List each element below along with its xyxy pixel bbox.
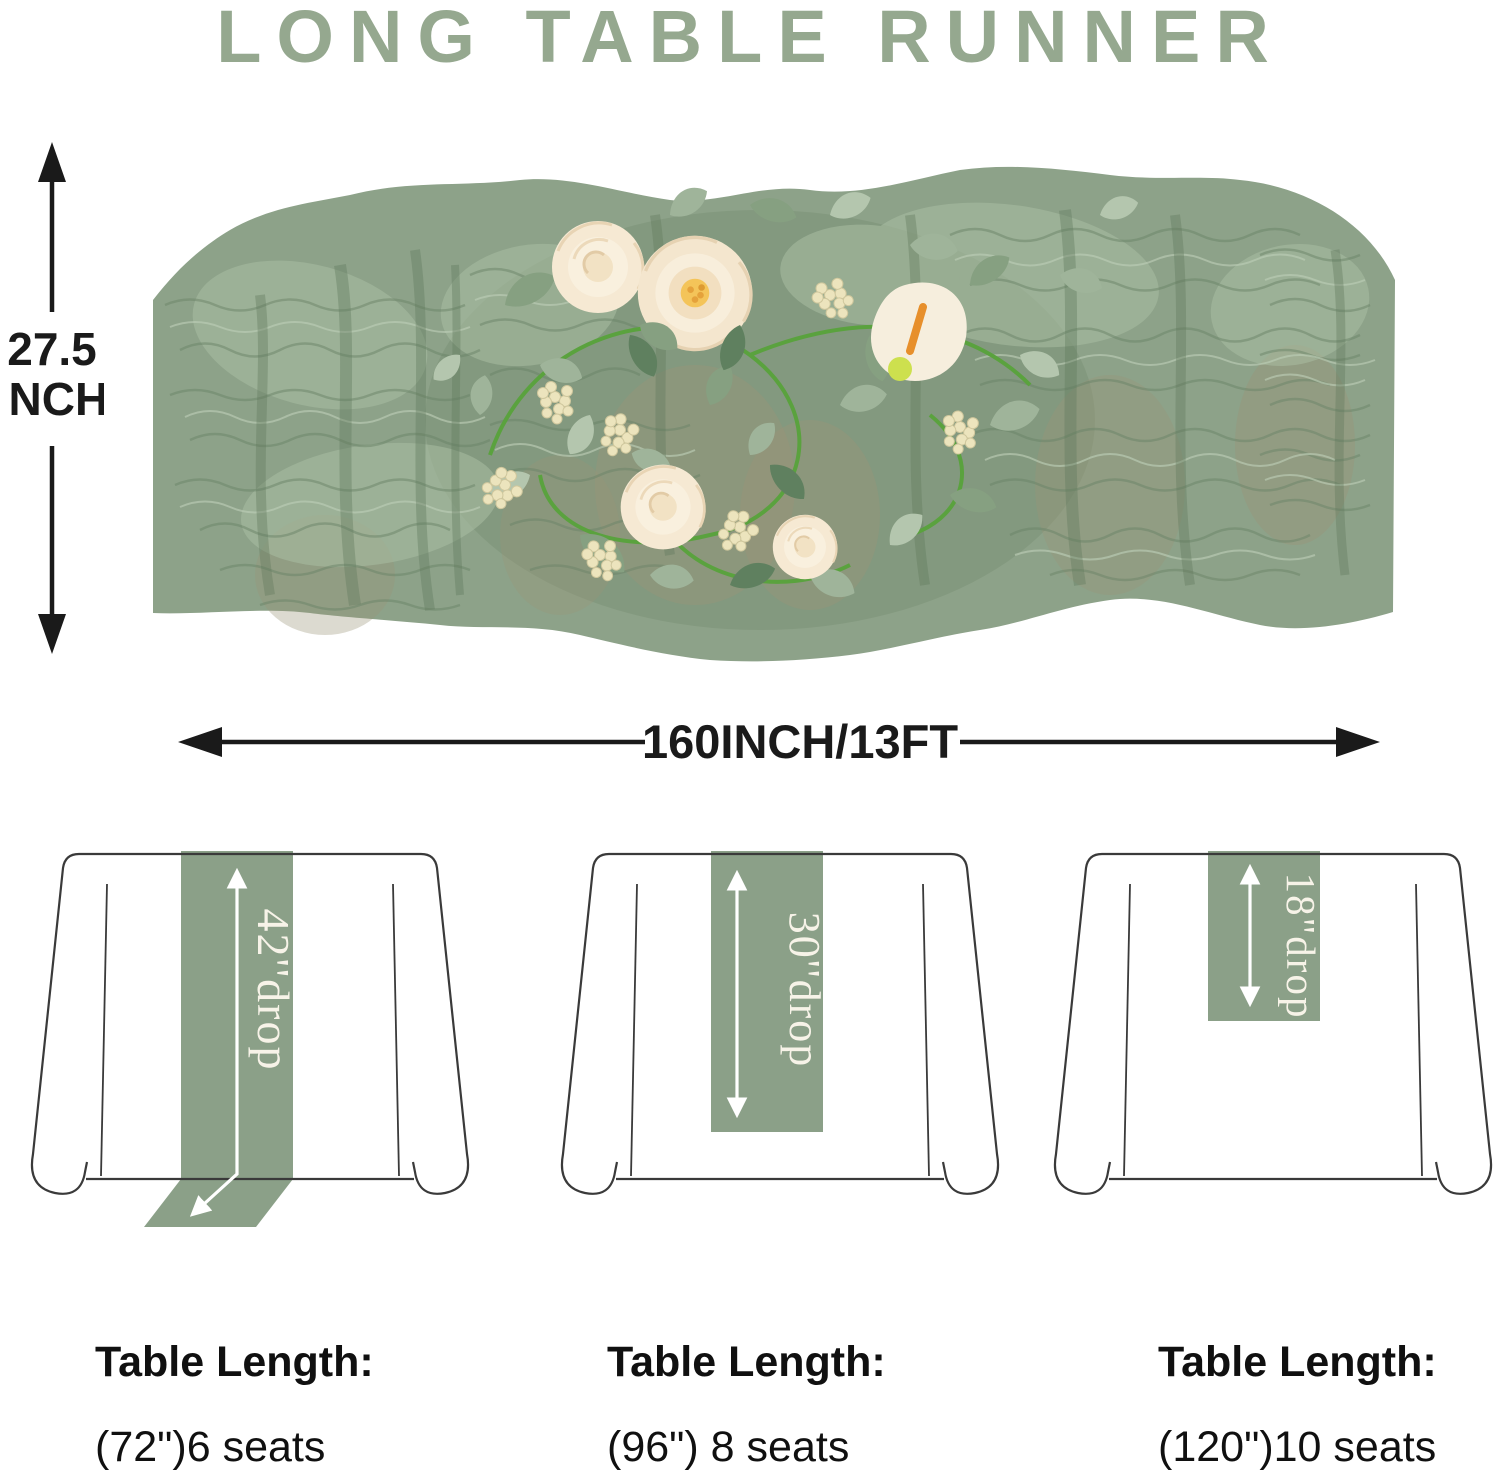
table-seats: (72")6 seats [95, 1423, 374, 1472]
page-title: LONG TABLE RUNNER [0, 0, 1500, 74]
drop-label: 18"drop [1278, 873, 1324, 1020]
product-infographic: LONG TABLE RUNNER 27.5 INCH [0, 0, 1500, 1473]
height-value-label: 27.5 [8, 323, 97, 375]
runner-overhang [144, 1179, 293, 1227]
height-dimension: 27.5 INCH [8, 138, 104, 658]
table-length-title: Table Length: [607, 1338, 886, 1387]
height-unit-label: INCH [8, 373, 104, 425]
table-diagram-8-seats: 30''drop [545, 838, 1015, 1258]
rose-bud-icon [773, 515, 837, 579]
table-seats: (96") 8 seats [607, 1423, 886, 1472]
rose-bud-icon [552, 221, 644, 313]
runner-fabric [153, 167, 1395, 662]
caption-8-seats: Table Length: (96") 8 seats [607, 1338, 886, 1472]
table-seats: (120")10 seats [1158, 1423, 1437, 1472]
caption-6-seats: Table Length: (72")6 seats [95, 1338, 374, 1472]
table-diagram-10-seats: 18"drop [1038, 838, 1500, 1258]
table-diagram-drawing: 42''drop [15, 838, 485, 1258]
table-diagram-drawing: 18"drop [1038, 838, 1500, 1258]
arrow-up-icon [38, 142, 66, 182]
arrow-left-icon [178, 727, 222, 757]
arrow-down-icon [38, 614, 66, 654]
table-diagram-6-seats: 42''drop [15, 838, 485, 1258]
table-length-title: Table Length: [95, 1338, 374, 1387]
length-dimension: 160INCH/13FT [0, 705, 1500, 780]
table-diagram-drawing: 30''drop [545, 838, 1015, 1258]
rose-bud-icon [621, 465, 706, 550]
product-photo [110, 155, 1410, 670]
drop-label: 42''drop [248, 909, 299, 1072]
caption-10-seats: Table Length: (120")10 seats [1158, 1338, 1437, 1472]
table-length-title: Table Length: [1158, 1338, 1437, 1387]
arrow-right-icon [1336, 727, 1380, 757]
drop-label: 30''drop [780, 912, 829, 1069]
length-value-label: 160INCH/13FT [642, 715, 958, 768]
